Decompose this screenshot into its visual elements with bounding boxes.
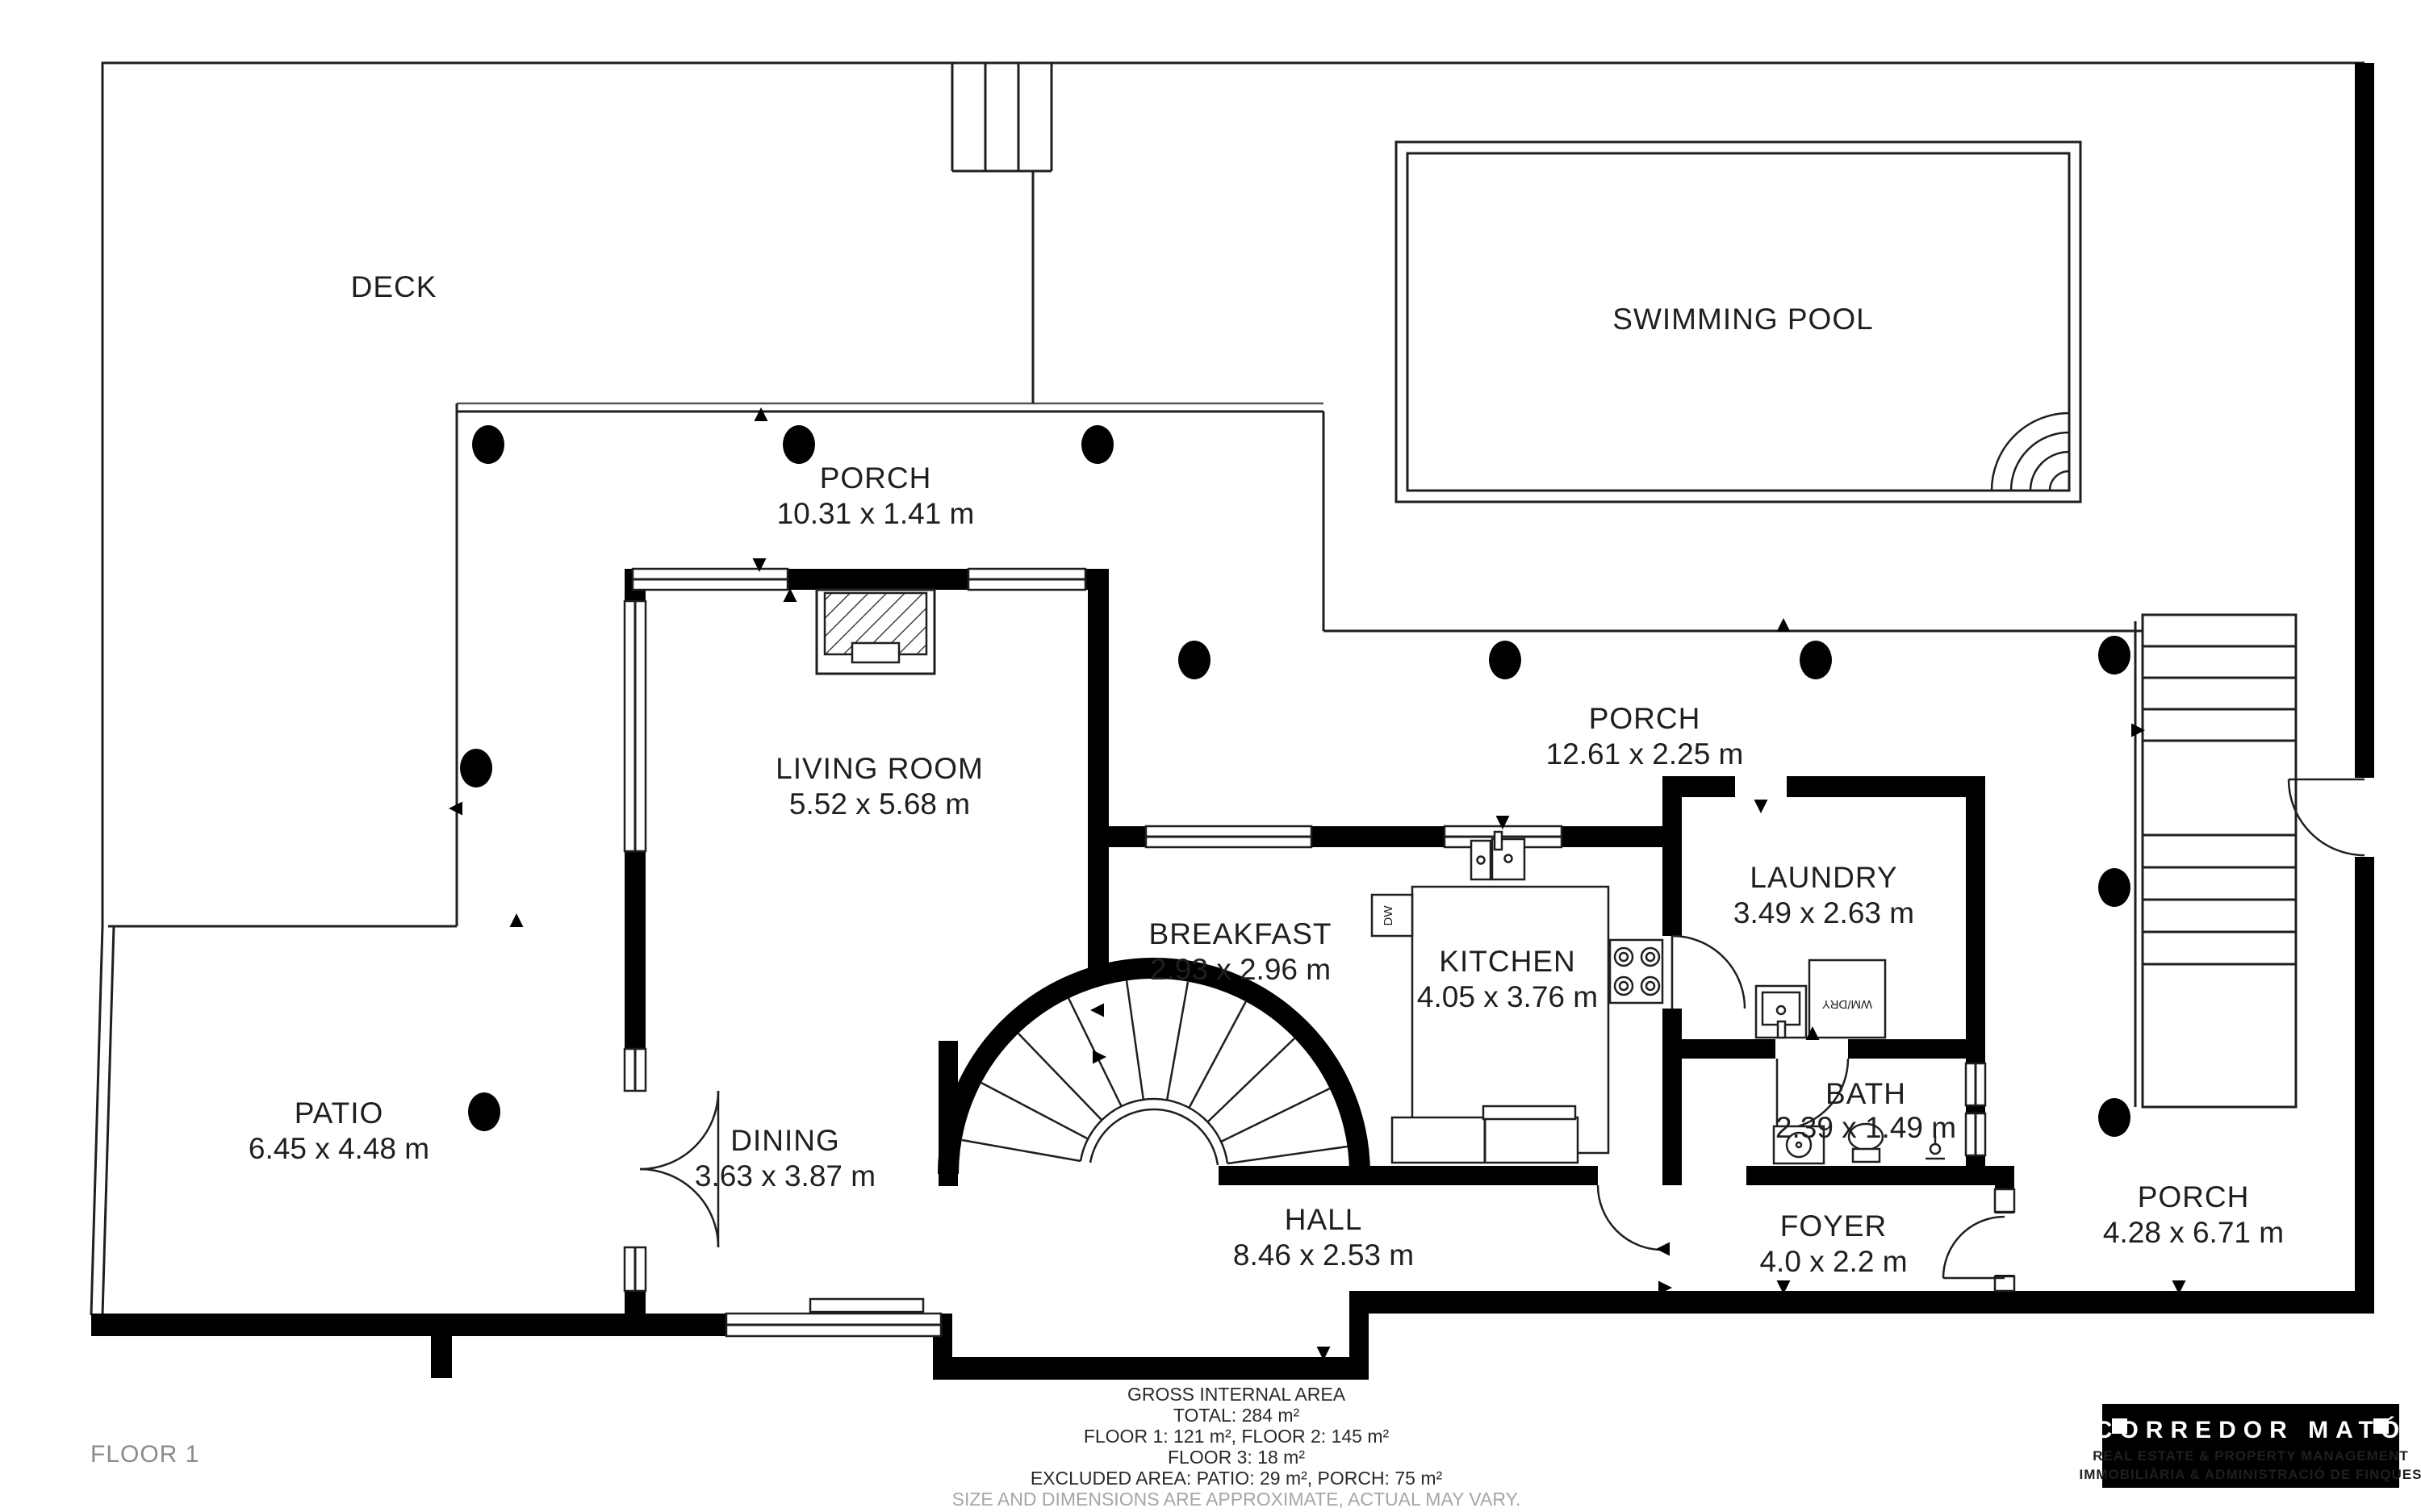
footer-line-4: FLOOR 3: 18 m²: [1168, 1447, 1305, 1468]
label-living-room: LIVING ROOM 5.52 x 5.68 m: [776, 752, 984, 821]
label-deck: DECK: [351, 270, 437, 303]
spiral-staircase: [948, 968, 1360, 1174]
svg-text:12.61 x 2.25 m: 12.61 x 2.25 m: [1546, 737, 1744, 771]
label-dining: DINING 3.63 x 3.87 m: [695, 1124, 876, 1192]
svg-text:2.39 x 1.49 m: 2.39 x 1.49 m: [1775, 1111, 1956, 1144]
svg-text:DECK: DECK: [351, 270, 437, 303]
washer-dryer-label: WM/DRY: [1822, 997, 1872, 1011]
label-porch-top: PORCH 10.31 x 1.41 m: [777, 462, 975, 530]
footer-area: GROSS INTERNAL AREA TOTAL: 284 m² FLOOR …: [90, 1384, 1520, 1510]
logo-title: CORREDOR MATÓ: [2095, 1416, 2406, 1443]
footer-line-5: EXCLUDED AREA: PATIO: 29 m², PORCH: 75 m…: [1031, 1468, 1443, 1489]
house-walls: [91, 63, 2374, 1380]
footer-line-1: GROSS INTERNAL AREA: [1127, 1384, 1346, 1405]
agency-logo: CORREDOR MATÓ REAL ESTATE & PROPERTY MAN…: [2080, 1404, 2421, 1488]
floor-plan-page: { "page": { "floor_label": "FLOOR 1", "b…: [0, 0, 2421, 1512]
label-bath: BATH 2.39 x 1.49 m: [1775, 1077, 1956, 1144]
dishwasher-icon: DW: [1372, 895, 1412, 936]
dishwasher-label: DW: [1382, 905, 1395, 926]
exterior-stairs: [2135, 615, 2296, 1107]
svg-text:PORCH: PORCH: [1589, 702, 1701, 735]
laundry-fixtures: WM/DRY: [1756, 960, 1885, 1038]
svg-text:KITCHEN: KITCHEN: [1439, 945, 1575, 978]
svg-text:LAUNDRY: LAUNDRY: [1750, 861, 1897, 894]
svg-text:LIVING ROOM: LIVING ROOM: [776, 752, 984, 785]
svg-text:5.52 x 5.68 m: 5.52 x 5.68 m: [789, 787, 970, 821]
svg-text:BREAKFAST: BREAKFAST: [1149, 917, 1332, 950]
svg-text:SWIMMING POOL: SWIMMING POOL: [1612, 303, 1873, 336]
footer-line-3: FLOOR 1: 121 m², FLOOR 2: 145 m²: [1084, 1426, 1390, 1447]
floor-label: FLOOR 1: [90, 1441, 199, 1468]
label-swimming-pool: SWIMMING POOL: [1612, 303, 1873, 336]
label-hall: HALL 8.46 x 2.53 m: [1233, 1203, 1414, 1272]
svg-text:2.93 x 2.96 m: 2.93 x 2.96 m: [1150, 953, 1331, 986]
footer-disclaimer: SIZE AND DIMENSIONS ARE APPROXIMATE, ACT…: [952, 1489, 1521, 1510]
svg-text:8.46 x 2.53 m: 8.46 x 2.53 m: [1233, 1238, 1414, 1272]
svg-text:HALL: HALL: [1285, 1203, 1363, 1236]
laundry-sink-icon: [1756, 986, 1806, 1038]
door-laundry: [1672, 936, 1745, 1009]
svg-text:PORCH: PORCH: [2138, 1180, 2250, 1213]
svg-text:4.28 x 6.71 m: 4.28 x 6.71 m: [2103, 1216, 2284, 1249]
svg-text:PORCH: PORCH: [820, 462, 932, 495]
svg-text:4.05 x 3.76 m: 4.05 x 3.76 m: [1417, 980, 1598, 1013]
stove-icon: [1610, 940, 1662, 1003]
svg-text:10.31 x 1.41 m: 10.31 x 1.41 m: [777, 497, 975, 530]
door-right-porch: [2289, 779, 2365, 855]
pool-steps-icon: [1992, 413, 2069, 491]
fireplace-icon: [817, 590, 935, 674]
washer-dryer-icon: WM/DRY: [1809, 960, 1885, 1038]
svg-text:DINING: DINING: [730, 1124, 840, 1157]
label-breakfast: BREAKFAST 2.93 x 2.96 m: [1149, 917, 1332, 986]
svg-text:3.49 x 2.63 m: 3.49 x 2.63 m: [1733, 896, 1914, 929]
label-patio: PATIO 6.45 x 4.48 m: [249, 1096, 429, 1165]
label-porch-mid: PORCH 12.61 x 2.25 m: [1546, 702, 1744, 771]
svg-text:BATH: BATH: [1825, 1077, 1906, 1110]
svg-text:PATIO: PATIO: [295, 1096, 384, 1130]
deck-stairs: [952, 63, 1052, 403]
label-laundry: LAUNDRY 3.49 x 2.63 m: [1733, 861, 1914, 929]
svg-text:6.45 x 4.48 m: 6.45 x 4.48 m: [249, 1132, 429, 1165]
label-foyer: FOYER 4.0 x 2.2 m: [1759, 1209, 1907, 1278]
logo-subtitle-1: REAL ESTATE & PROPERTY MANAGEMENT: [2093, 1448, 2409, 1464]
floor-plan-svg: DW WM/DRY: [0, 0, 2421, 1512]
exterior-boundary: [91, 63, 2365, 1315]
door-kitchen-foyer: [1598, 1185, 1662, 1250]
svg-text:4.0 x 2.2 m: 4.0 x 2.2 m: [1759, 1245, 1907, 1278]
svg-text:FOYER: FOYER: [1780, 1209, 1887, 1243]
footer-line-2: TOTAL: 284 m²: [1173, 1405, 1300, 1426]
svg-text:3.63 x 3.87 m: 3.63 x 3.87 m: [695, 1159, 876, 1192]
logo-subtitle-2: IMMOBILIÀRIA & ADMINISTRACIÓ DE FINQUES: [2080, 1467, 2421, 1482]
label-porch-right: PORCH 4.28 x 6.71 m: [2103, 1180, 2284, 1249]
